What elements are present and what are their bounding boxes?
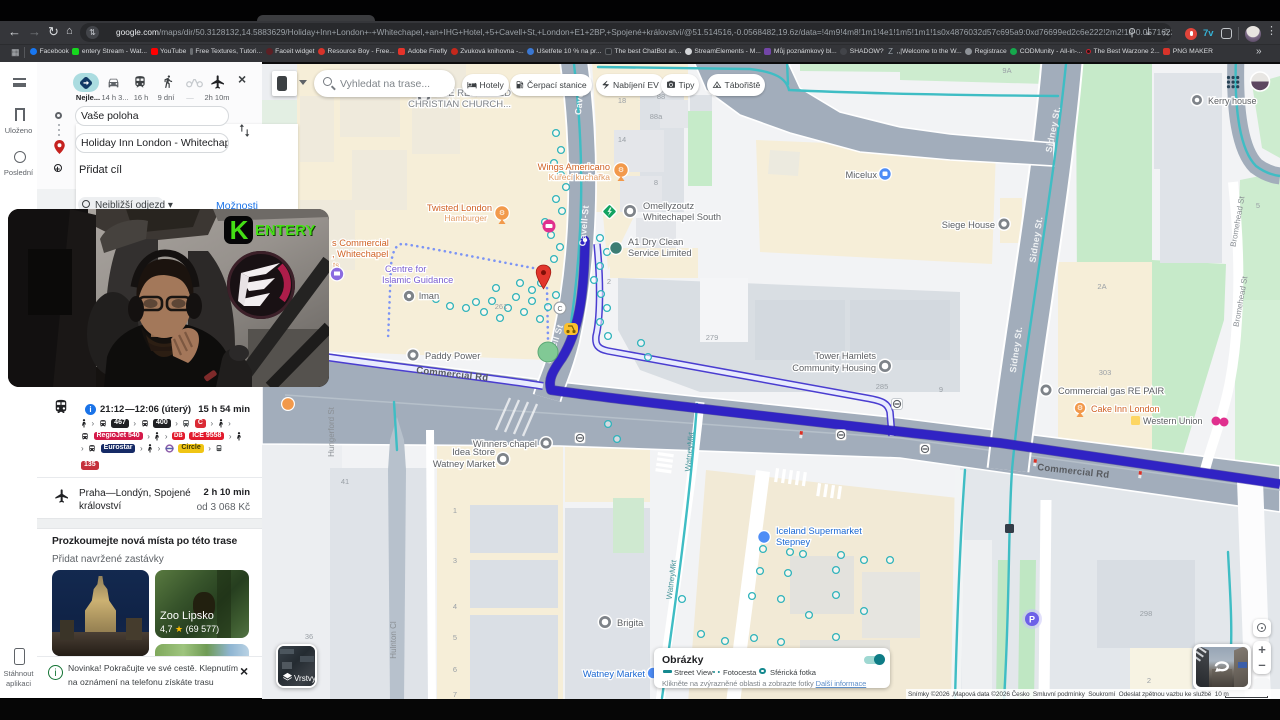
svg-text:, Whitechapel: , Whitechapel — [332, 249, 388, 259]
svg-text:⚙: ⚙ — [499, 209, 505, 217]
svg-text:Kerry house: Kerry house — [1208, 96, 1257, 106]
svg-text:2: 2 — [1147, 676, 1151, 685]
svg-text:261: 261 — [495, 302, 508, 311]
svg-text:6: 6 — [453, 665, 457, 674]
svg-text:Hungerford St: Hungerford St — [327, 406, 336, 457]
svg-text:Hulnton Cl: Hulnton Cl — [389, 621, 398, 659]
svg-text:Commercial gas RE PAIR: Commercial gas RE PAIR — [1058, 386, 1165, 396]
svg-text:Iceland Supermarket: Iceland Supermarket — [776, 526, 862, 536]
svg-text:303: 303 — [1099, 368, 1112, 377]
svg-text:9: 9 — [939, 385, 943, 394]
svg-text:Kuřecí kuchařka: Kuřecí kuchařka — [549, 172, 611, 182]
svg-text:88a: 88a — [650, 112, 663, 121]
svg-text:36: 36 — [305, 632, 313, 641]
svg-text:1: 1 — [453, 506, 457, 515]
svg-text:s Commercial: s Commercial — [332, 238, 389, 248]
svg-text:7: 7 — [453, 690, 457, 699]
svg-text:Community Housing: Community Housing — [792, 363, 876, 373]
svg-text:Brigita: Brigita — [617, 618, 644, 628]
svg-text:Centre for: Centre for — [385, 264, 426, 274]
svg-text:lman: lman — [419, 291, 439, 301]
svg-text:8: 8 — [654, 178, 658, 187]
svg-text:5: 5 — [453, 633, 457, 642]
svg-text:Watney Market: Watney Market — [433, 459, 496, 469]
svg-text:Watney Market: Watney Market — [583, 669, 646, 679]
svg-text:Idea Store: Idea Store — [452, 447, 495, 457]
svg-text:ENTERY: ENTERY — [255, 223, 316, 239]
svg-text:Twisted London: Twisted London — [427, 203, 492, 213]
svg-text:Islamic Guidance: Islamic Guidance — [382, 275, 453, 285]
svg-text:5: 5 — [1256, 201, 1260, 210]
svg-text:Micelux: Micelux — [845, 170, 877, 180]
svg-text:P: P — [1029, 615, 1035, 625]
svg-text:⚙: ⚙ — [1077, 404, 1083, 412]
svg-text:Wings Americano: Wings Americano — [538, 162, 610, 172]
svg-text:2A: 2A — [1097, 282, 1106, 291]
svg-text:Tower Hamlets: Tower Hamlets — [815, 351, 877, 361]
svg-text:Siege House: Siege House — [942, 220, 995, 230]
svg-text:279: 279 — [706, 333, 719, 342]
svg-text:285: 285 — [876, 382, 889, 391]
svg-text:Western Union: Western Union — [1143, 416, 1202, 426]
svg-text:C: C — [557, 306, 562, 313]
svg-text:Omellyzoutz: Omellyzoutz — [643, 201, 694, 211]
svg-text:Cake Inn London: Cake Inn London — [1091, 404, 1160, 414]
svg-text:A1 Dry Clean: A1 Dry Clean — [628, 237, 683, 247]
svg-text:Service Limited: Service Limited — [628, 248, 692, 258]
svg-text:41: 41 — [341, 477, 349, 486]
svg-text:Hamburger: Hamburger — [444, 213, 487, 223]
svg-text:2: 2 — [607, 277, 611, 286]
svg-text:3: 3 — [453, 556, 457, 565]
svg-text:⚙: ⚙ — [618, 166, 624, 174]
svg-text:Paddy Power: Paddy Power — [425, 351, 480, 361]
svg-text:CHRISTIAN CHURCH...: CHRISTIAN CHURCH... — [408, 99, 511, 110]
svg-text:18: 18 — [618, 96, 626, 105]
svg-text:298: 298 — [1140, 609, 1153, 618]
svg-text:Whitechapel South: Whitechapel South — [643, 212, 721, 222]
svg-text:4: 4 — [453, 602, 457, 611]
svg-text:K: K — [230, 215, 249, 245]
svg-text:9A: 9A — [1002, 66, 1011, 75]
svg-text:Stepney: Stepney — [776, 537, 810, 547]
svg-text:14: 14 — [618, 135, 626, 144]
